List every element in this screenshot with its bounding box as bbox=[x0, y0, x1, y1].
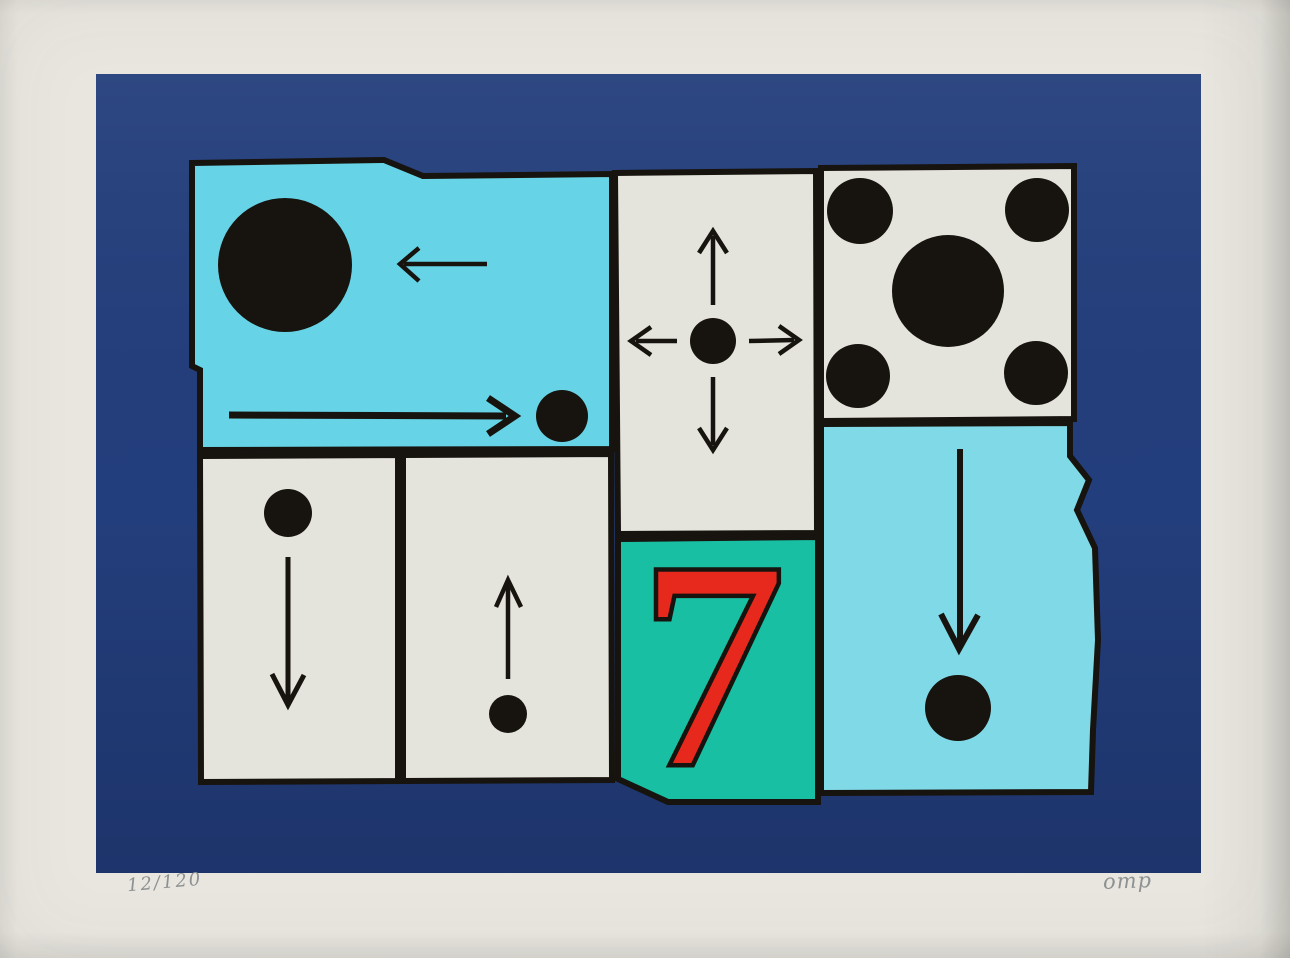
large-black-dot bbox=[218, 198, 352, 332]
cross-center-dot bbox=[690, 318, 736, 364]
dice-dot-top-left bbox=[827, 178, 893, 244]
black-dot-below-arrow bbox=[925, 675, 991, 741]
dot-below-up-arrow bbox=[489, 695, 527, 733]
artist-signature: omp bbox=[1103, 868, 1153, 894]
dice-dot-bottom-right bbox=[1004, 341, 1068, 405]
dot-above-down-arrow bbox=[264, 489, 312, 537]
small-black-dot-arrow-target bbox=[536, 390, 588, 442]
serigraph-artwork: 7 bbox=[0, 0, 1290, 958]
dice-dot-center bbox=[892, 235, 1004, 347]
dice-dot-top-right bbox=[1005, 178, 1069, 242]
dice-dot-bottom-left bbox=[826, 344, 890, 408]
numeral-seven: 7 bbox=[639, 504, 785, 827]
cross-arrow-right-shaft bbox=[749, 340, 794, 341]
paper-sheet: 7 12/120 omp bbox=[0, 0, 1290, 958]
arrow-long-right-shaft bbox=[229, 415, 506, 416]
